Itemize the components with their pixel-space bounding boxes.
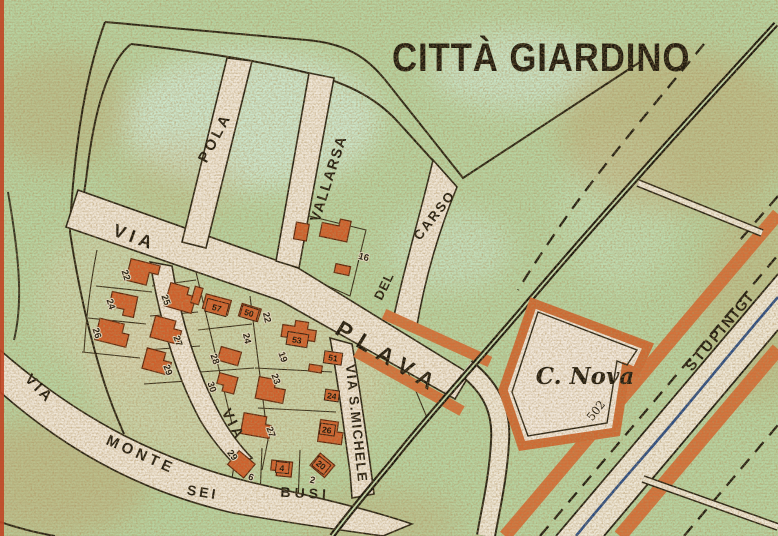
citta-giardino-map: 57 50 53 51 24 26 4 20 22 24 26 25 27 29…	[0, 0, 778, 536]
page-edge	[0, 0, 4, 536]
map-canvas: 57 50 53 51 24 26 4 20 22 24 26 25 27 29…	[0, 0, 778, 536]
paper-grain	[0, 0, 778, 536]
